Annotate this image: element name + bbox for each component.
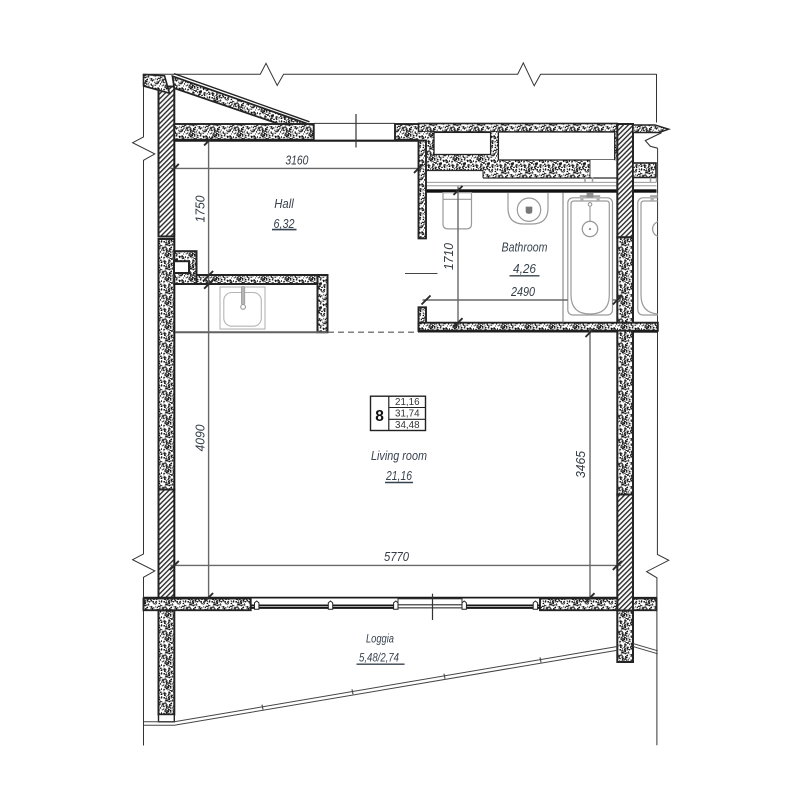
svg-text:Living room: Living room bbox=[371, 449, 427, 463]
svg-text:8: 8 bbox=[375, 408, 384, 425]
svg-text:34,48: 34,48 bbox=[395, 420, 420, 431]
svg-text:5770: 5770 bbox=[384, 549, 410, 564]
svg-text:2490: 2490 bbox=[510, 284, 535, 299]
svg-text:3465: 3465 bbox=[573, 450, 588, 478]
svg-text:Hall: Hall bbox=[274, 197, 295, 211]
svg-text:1710: 1710 bbox=[441, 242, 456, 270]
svg-text:Loggia: Loggia bbox=[366, 632, 394, 646]
svg-text:1750: 1750 bbox=[192, 195, 207, 223]
svg-text:21,16: 21,16 bbox=[385, 469, 412, 483]
svg-text:3160: 3160 bbox=[285, 152, 309, 167]
svg-text:Bathroom: Bathroom bbox=[502, 241, 548, 255]
svg-text:4090: 4090 bbox=[193, 424, 208, 452]
svg-text:31,74: 31,74 bbox=[395, 409, 420, 420]
svg-text:5,48/2,74: 5,48/2,74 bbox=[359, 651, 399, 665]
svg-text:4,26: 4,26 bbox=[513, 262, 536, 276]
svg-text:21,16: 21,16 bbox=[395, 397, 420, 408]
